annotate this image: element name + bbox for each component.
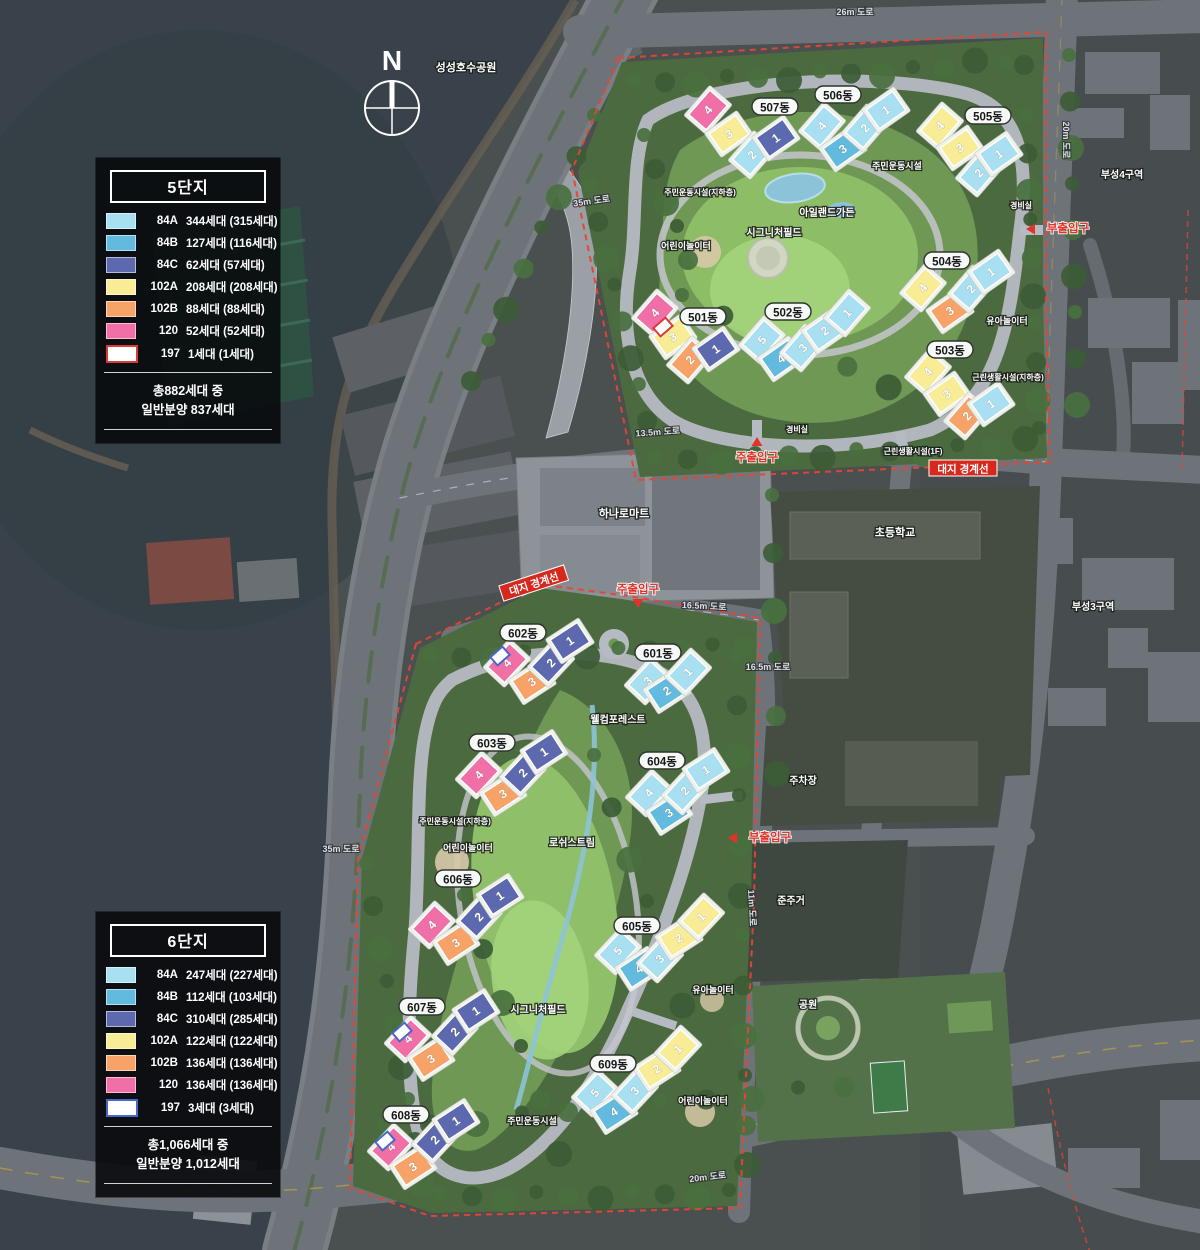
legend-row: 84A247세대 (227세대) bbox=[106, 967, 270, 983]
building-label-504동: 504동 bbox=[924, 252, 970, 269]
tree bbox=[1061, 264, 1087, 290]
building-label-502동: 502동 bbox=[765, 303, 811, 320]
tree bbox=[761, 598, 787, 624]
place-label: 근린생활시설(1F) bbox=[884, 446, 943, 456]
building-label-text: 503동 bbox=[935, 345, 965, 358]
legend-total: 총1,066세대 중일반분양 1,012세대 bbox=[96, 1136, 280, 1174]
legend-unit-count: 136세대 (136세대) bbox=[186, 1055, 278, 1071]
compass-n-label: N bbox=[382, 45, 402, 76]
legend-unit-count: 127세대 (116세대) bbox=[186, 235, 277, 251]
legend-unit-type: 84C bbox=[144, 1013, 178, 1025]
tree bbox=[739, 1086, 765, 1112]
building-label-608동: 608동 bbox=[383, 1106, 429, 1123]
place-label: 하나로마트 bbox=[599, 506, 650, 520]
tree bbox=[748, 68, 768, 88]
road-label: 16.5m 도로 bbox=[746, 662, 791, 672]
legend-unit-count: 112세대 (103세대) bbox=[186, 989, 277, 1005]
tree bbox=[738, 1068, 752, 1082]
tree bbox=[1066, 349, 1086, 369]
tree bbox=[1060, 92, 1080, 112]
tree bbox=[363, 896, 383, 916]
place-label: 준주거 bbox=[777, 894, 805, 907]
legend-unit-type: 84B bbox=[144, 237, 178, 249]
building-label-602동: 602동 bbox=[500, 624, 546, 641]
building-label-text: 609동 bbox=[598, 1059, 628, 1072]
legend-row: 1971세대 (1세대) bbox=[106, 345, 270, 363]
tree bbox=[670, 219, 684, 233]
tree bbox=[684, 1185, 710, 1211]
tree bbox=[530, 1090, 550, 1110]
building-label-505동: 505동 bbox=[965, 107, 1011, 124]
tree bbox=[841, 64, 861, 84]
tree bbox=[813, 64, 827, 78]
entrance-label-text: 부출입구 bbox=[749, 830, 792, 844]
legend-unit-count: 52세대 (52세대) bbox=[186, 323, 270, 339]
tree bbox=[462, 1186, 482, 1206]
legend-swatch bbox=[106, 279, 136, 295]
tree bbox=[626, 1184, 640, 1198]
site-plan-canvas: 4321543214321432143214321432132143214321… bbox=[0, 0, 1200, 1250]
tree bbox=[653, 1093, 667, 1107]
legend-unit-count: 1세대 (1세대) bbox=[188, 346, 270, 362]
legend-row: 102A208세대 (208세대) bbox=[106, 279, 270, 295]
legend-unit-type: 84A bbox=[144, 969, 178, 981]
legend-swatch bbox=[106, 967, 136, 983]
tree bbox=[1065, 177, 1079, 191]
tree bbox=[433, 1186, 447, 1200]
legend-unit-type: 102A bbox=[144, 1035, 178, 1047]
road-label: 35m 도로 bbox=[322, 844, 360, 854]
tree bbox=[727, 695, 747, 715]
legend-unit-count: 344세대 (315세대) bbox=[186, 213, 278, 229]
building-label-604동: 604동 bbox=[639, 752, 685, 769]
building-label-601동: 601동 bbox=[635, 644, 681, 661]
tree bbox=[810, 445, 836, 471]
legend-swatch bbox=[106, 213, 136, 229]
legend-swatch bbox=[106, 301, 136, 317]
tree bbox=[906, 60, 920, 74]
tree bbox=[776, 67, 802, 93]
tree bbox=[493, 297, 519, 323]
tree bbox=[834, 1077, 854, 1097]
building-label-text: 602동 bbox=[508, 628, 538, 641]
legend-swatch bbox=[106, 1011, 136, 1027]
tree bbox=[514, 1039, 528, 1053]
legend-row: 102B88세대 (88세대) bbox=[106, 301, 270, 317]
legend-swatch bbox=[106, 235, 136, 251]
tree bbox=[869, 63, 895, 89]
building-label-text: 506동 bbox=[823, 90, 853, 103]
legend-row: 120136세대 (136세대) bbox=[106, 1077, 270, 1093]
building-label-609동: 609동 bbox=[590, 1055, 636, 1072]
entrance-label-text: 주출입구 bbox=[736, 450, 779, 464]
building-label-text: 504동 bbox=[932, 256, 962, 269]
tree bbox=[735, 928, 749, 942]
tree bbox=[731, 1023, 757, 1049]
tree bbox=[934, 59, 954, 79]
legend-unit-type: 102B bbox=[144, 303, 178, 315]
legend-unit-type: 102A bbox=[144, 281, 178, 293]
legend-swatch bbox=[106, 1077, 136, 1093]
legend-swatch bbox=[106, 257, 136, 273]
legend-row: 84B127세대 (116세대) bbox=[106, 235, 270, 251]
tree bbox=[1026, 352, 1046, 372]
tree bbox=[1020, 283, 1046, 309]
legend-title: 5단지 bbox=[110, 170, 266, 203]
tree bbox=[613, 311, 633, 331]
tree bbox=[849, 442, 863, 456]
tree bbox=[588, 1186, 614, 1212]
park-parcel bbox=[752, 972, 1015, 1142]
tree bbox=[451, 648, 471, 668]
tree bbox=[678, 449, 698, 469]
building-label-text: 507동 bbox=[760, 102, 790, 115]
place-label: 공원 bbox=[799, 998, 817, 1011]
tree bbox=[655, 1184, 675, 1204]
tree bbox=[457, 888, 471, 902]
tree bbox=[678, 250, 698, 270]
building-label-text: 604동 bbox=[647, 756, 677, 769]
place-label: 주민운동시설(지하층) bbox=[664, 187, 736, 197]
tree bbox=[1019, 108, 1033, 122]
tree bbox=[587, 108, 601, 122]
place-label: 어린이놀이터 bbox=[678, 1095, 728, 1106]
building-label-text: 601동 bbox=[643, 648, 673, 661]
legend-unit-type: 84B bbox=[144, 991, 178, 1003]
legend-unit-count: 136세대 (136세대) bbox=[186, 1077, 278, 1093]
legend-row: 1973세대 (3세대) bbox=[106, 1099, 270, 1117]
tree bbox=[1025, 388, 1051, 414]
place-label: 어린이놀이터 bbox=[443, 842, 493, 853]
tree bbox=[1022, 248, 1042, 268]
tree bbox=[1014, 55, 1034, 75]
tree bbox=[1028, 317, 1042, 331]
tree bbox=[1032, 421, 1046, 435]
tree bbox=[720, 69, 734, 83]
building-label-text: 606동 bbox=[443, 874, 473, 887]
tree bbox=[380, 974, 394, 988]
tree bbox=[734, 1152, 760, 1178]
tree bbox=[645, 159, 665, 179]
tree bbox=[766, 706, 786, 726]
place-label: 시그니처필드 bbox=[746, 226, 801, 239]
tree bbox=[593, 246, 619, 272]
building-label-606동: 606동 bbox=[435, 870, 481, 887]
tree bbox=[566, 146, 586, 166]
legend-unit-count: 122세대 (122세대) bbox=[186, 1033, 278, 1049]
tree bbox=[655, 72, 675, 92]
place-label: 로쉬스트림 bbox=[549, 836, 595, 849]
tree bbox=[1068, 305, 1082, 319]
place-label: 유아놀이터 bbox=[986, 315, 1027, 326]
building-label-507동: 507동 bbox=[752, 98, 798, 115]
tree bbox=[732, 788, 746, 802]
tree bbox=[951, 438, 965, 452]
tree bbox=[359, 856, 373, 870]
tree bbox=[999, 56, 1013, 70]
place-label: 웰컴포레스트 bbox=[590, 713, 645, 726]
entrance-label-text: 부출입구 bbox=[1047, 221, 1090, 235]
tree bbox=[764, 761, 790, 787]
legend-unit-type: 197 bbox=[146, 348, 180, 360]
legend-unit-count: 310세대 (285세대) bbox=[186, 1011, 278, 1027]
legend-total: 총882세대 중일반분양 837세대 bbox=[96, 382, 280, 420]
building-label-506동: 506동 bbox=[815, 86, 861, 103]
legend-row: 102B136세대 (136세대) bbox=[106, 1055, 270, 1071]
legend-swatch bbox=[106, 1055, 136, 1071]
legend-swatch bbox=[106, 345, 138, 363]
tree bbox=[529, 1185, 543, 1199]
legend-unit-type: 197 bbox=[146, 1102, 180, 1114]
tree bbox=[706, 638, 720, 652]
legend-row: 84A344세대 (315세대) bbox=[106, 213, 270, 229]
tree bbox=[546, 1141, 572, 1167]
building-label-text: 605동 bbox=[622, 921, 652, 934]
legend-unit-type: 120 bbox=[144, 1079, 178, 1091]
tree bbox=[534, 220, 548, 234]
tree bbox=[837, 357, 857, 377]
legend-unit-count: 62세대 (57세대) bbox=[186, 257, 270, 273]
tree bbox=[632, 377, 646, 391]
tree bbox=[367, 936, 393, 962]
place-label: 어린이놀이터 bbox=[661, 240, 711, 251]
building-label-text: 502동 bbox=[773, 307, 803, 320]
legend-unit-type: 84A bbox=[144, 215, 178, 227]
legend-row: 84C62세대 (57세대) bbox=[106, 257, 270, 273]
place-label: 부성3구역 bbox=[1072, 600, 1114, 613]
tree bbox=[482, 333, 496, 347]
tree bbox=[791, 1081, 805, 1095]
tree bbox=[647, 450, 661, 464]
tree bbox=[669, 993, 695, 1019]
legend-row: 102A122세대 (122세대) bbox=[106, 1033, 270, 1049]
tree bbox=[675, 288, 689, 302]
legend-unit-count: 3세대 (3세대) bbox=[188, 1100, 270, 1116]
tree bbox=[618, 345, 644, 371]
place-label: 주민운동시설 bbox=[872, 160, 922, 171]
legend-unit-type: 102B bbox=[144, 1057, 178, 1069]
tree bbox=[627, 73, 641, 87]
place-label: 시그니처필드 bbox=[510, 1003, 565, 1016]
legend-complex5: 5단지84A344세대 (315세대)84B127세대 (116세대)84C62… bbox=[96, 158, 280, 443]
tree bbox=[423, 648, 437, 662]
tree bbox=[401, 1092, 415, 1106]
tree bbox=[587, 748, 601, 762]
legend-unit-count: 208세대 (208세대) bbox=[186, 279, 278, 295]
legend-swatch bbox=[106, 989, 136, 1005]
legend-unit-count: 247세대 (227세대) bbox=[186, 967, 278, 983]
tree bbox=[708, 449, 734, 475]
boundary-label: 대지 경계선 bbox=[929, 460, 997, 476]
road-label: 20m 도로 bbox=[1061, 121, 1071, 159]
tree bbox=[461, 371, 481, 391]
tree bbox=[546, 184, 572, 210]
legend-row: 12052세대 (52세대) bbox=[106, 323, 270, 339]
building-label-503동: 503동 bbox=[927, 341, 973, 358]
building-label-text: 608동 bbox=[391, 1110, 421, 1123]
tree bbox=[876, 374, 902, 400]
building-label-text: 501동 bbox=[688, 312, 718, 325]
tree bbox=[558, 1102, 578, 1122]
tree bbox=[640, 894, 654, 908]
legend-unit-type: 84C bbox=[144, 259, 178, 271]
tree bbox=[736, 1116, 756, 1136]
building-label-603동: 603동 bbox=[469, 734, 515, 751]
place-label: 부성4구역 bbox=[1101, 168, 1143, 181]
building-label-607동: 607동 bbox=[399, 998, 445, 1015]
tree bbox=[637, 128, 651, 142]
legend-row: 84B112세대 (103세대) bbox=[106, 989, 270, 1005]
tree bbox=[722, 1183, 736, 1197]
boundary-label-text: 대지 경계선 bbox=[937, 463, 988, 476]
legend-unit-count: 88세대 (88세대) bbox=[186, 301, 270, 317]
tree bbox=[514, 259, 534, 279]
place-label: 성성호수공원 bbox=[436, 60, 497, 74]
place-label: 근린생활시설(지하층) bbox=[972, 372, 1044, 382]
tree bbox=[765, 488, 779, 502]
tree bbox=[1064, 392, 1090, 418]
tree bbox=[602, 797, 622, 817]
tree bbox=[1023, 212, 1037, 226]
tree bbox=[763, 543, 783, 563]
place-label: 유아놀이터 bbox=[692, 984, 733, 995]
tree bbox=[607, 278, 621, 292]
legend-swatch bbox=[106, 1033, 136, 1049]
tree bbox=[583, 178, 597, 192]
building-label-501동: 501동 bbox=[680, 308, 726, 325]
building-label-605동: 605동 bbox=[614, 917, 660, 934]
legend-swatch bbox=[106, 323, 136, 339]
legend-complex6: 6단지84A247세대 (227세대)84B112세대 (103세대)84C31… bbox=[96, 912, 280, 1197]
tree bbox=[725, 743, 751, 769]
tree bbox=[981, 438, 1001, 458]
tree bbox=[962, 48, 988, 74]
legend-row: 84C310세대 (285세대) bbox=[106, 1011, 270, 1027]
tree bbox=[588, 212, 608, 232]
place-label: 경비실 bbox=[786, 424, 808, 434]
legend-title: 6단지 bbox=[110, 924, 266, 957]
tree bbox=[558, 1185, 578, 1205]
tree bbox=[611, 641, 625, 655]
semi-residential-parcel bbox=[746, 840, 908, 982]
tree bbox=[491, 1187, 517, 1213]
tree bbox=[779, 445, 799, 465]
entrance-label-text: 주출입구 bbox=[617, 582, 660, 596]
legend-unit-type: 120 bbox=[144, 325, 178, 337]
place-label: 경비실 bbox=[1010, 200, 1032, 210]
place-label: 초등학교 bbox=[875, 525, 915, 539]
tree bbox=[616, 847, 642, 873]
tree bbox=[729, 648, 743, 662]
building-label-text: 505동 bbox=[973, 111, 1003, 124]
road-label: 11m 도로 bbox=[746, 889, 758, 927]
place-label: 아일랜드가든 bbox=[799, 206, 854, 219]
place-label: 주민운동시설 bbox=[507, 1115, 557, 1126]
place-label: 주민운동시설(지하층) bbox=[419, 816, 491, 826]
place-label: 주차장 bbox=[789, 774, 817, 787]
road-label: 26m 도로 bbox=[836, 7, 874, 17]
building-label-text: 603동 bbox=[477, 738, 507, 751]
legend-swatch bbox=[106, 1099, 138, 1117]
building-label-text: 607동 bbox=[407, 1002, 437, 1015]
tree bbox=[1062, 48, 1076, 62]
